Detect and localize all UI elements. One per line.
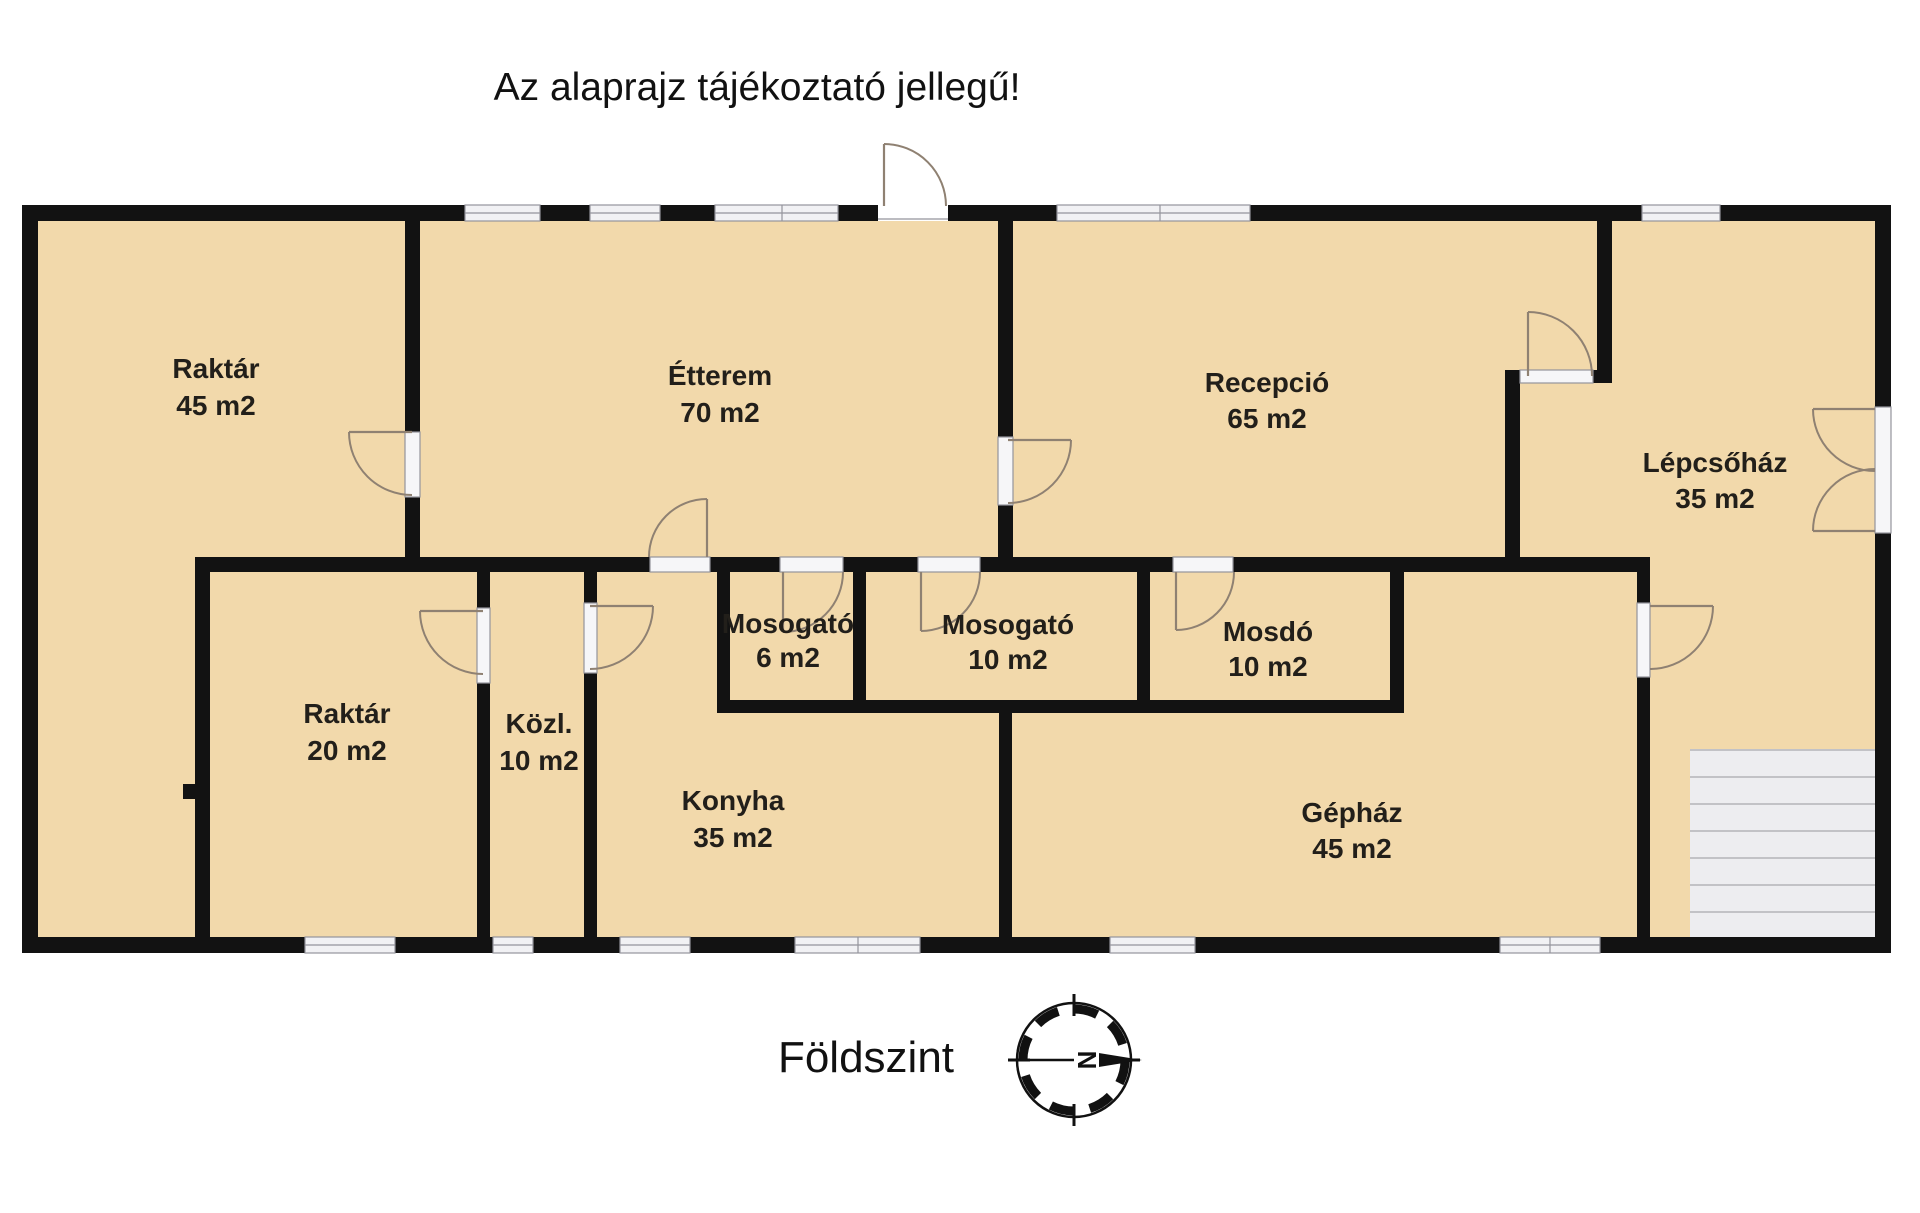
room-area: 35 m2 (693, 822, 772, 853)
room-area: 6 m2 (756, 642, 820, 673)
wall-mosogato6-west (717, 572, 730, 713)
floor-name-label: Földszint (778, 1033, 954, 1082)
room-name: Gépház (1301, 797, 1402, 828)
window (590, 205, 660, 221)
room-area: 70 m2 (680, 397, 759, 428)
wall-north (22, 205, 1891, 221)
room-name: Lépcsőház (1643, 447, 1788, 478)
entrance-door (878, 144, 948, 221)
page-title: Az alaprajz tájékoztató jellegű! (494, 66, 1021, 109)
room-name: Étterem (668, 360, 772, 391)
room-area: 45 m2 (1312, 833, 1391, 864)
window (1500, 937, 1600, 953)
room-area: 65 m2 (1227, 403, 1306, 434)
wall-west (22, 205, 38, 953)
room-area: 10 m2 (968, 644, 1047, 675)
wall-wetrooms-south (717, 700, 1404, 713)
window (620, 937, 690, 953)
wall-recepcio-lepcso-lower (1505, 383, 1520, 572)
floor-plan-drawing: Az alaprajz tájékoztató jellegű! (0, 0, 1920, 1213)
window (1642, 205, 1720, 221)
room-name: Mosogató (722, 608, 854, 639)
floor-plan-page: Az alaprajz tájékoztató jellegű! (0, 0, 1920, 1213)
wall-stub (183, 784, 196, 799)
room-name: Mosogató (942, 609, 1074, 640)
window (305, 937, 395, 953)
room-name: Recepció (1205, 367, 1330, 398)
room-area: 10 m2 (1228, 651, 1307, 682)
room-name: Raktár (303, 698, 390, 729)
wall-mosdo-east (1390, 572, 1404, 713)
window (1057, 205, 1250, 221)
room-name: Raktár (172, 353, 259, 384)
window (715, 205, 838, 221)
room-area: 35 m2 (1675, 483, 1754, 514)
wall-raktar45-etterem (405, 220, 420, 572)
wall-raktar20-west (195, 557, 210, 937)
wall-konyha-gephaz (999, 713, 1012, 937)
wall-mosogato10-mosdo (1137, 572, 1150, 713)
window (465, 205, 540, 221)
room-area: 20 m2 (307, 735, 386, 766)
window (1110, 937, 1195, 953)
north-letter: N (1072, 1051, 1102, 1070)
wall-recepcio-lepcso-upper (1597, 220, 1612, 370)
wall-etterem-recepcio (998, 220, 1013, 557)
room-area: 10 m2 (499, 745, 578, 776)
compass-icon: N (1008, 994, 1142, 1126)
room-name: Mosdó (1223, 616, 1313, 647)
wall-mosogato6-mosogato10 (853, 572, 866, 713)
wall-south (22, 937, 1891, 953)
window (493, 937, 533, 953)
stairs (1690, 750, 1875, 937)
room-name: Közl. (506, 708, 573, 739)
room-name: Konyha (682, 785, 785, 816)
room-area: 45 m2 (176, 390, 255, 421)
window (795, 937, 920, 953)
wall-east (1875, 205, 1891, 953)
